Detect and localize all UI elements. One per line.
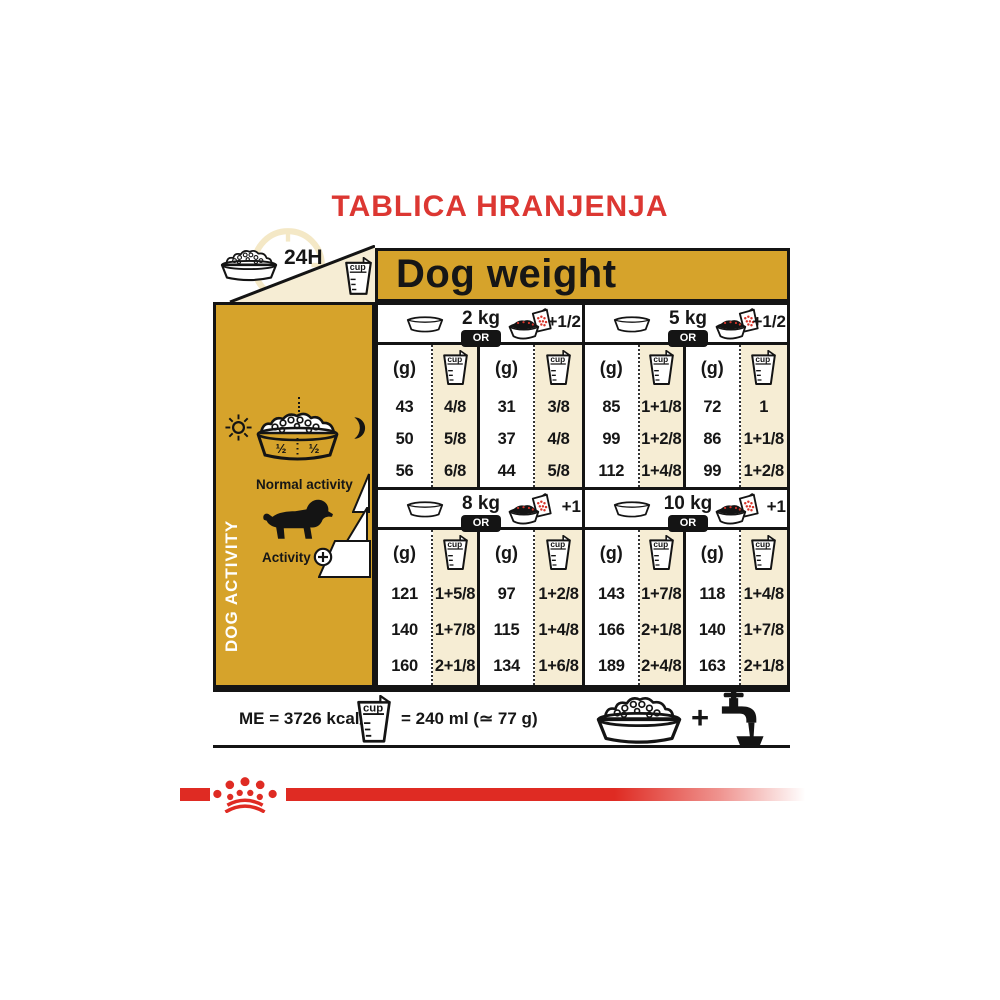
bowl-half-left-label: ½ xyxy=(276,441,287,456)
kibble-bowl-icon xyxy=(590,694,688,745)
weight-block-2kg: 2 kg OR +1/2 (g) 43 50 56 4/8 5/8 6/8 xyxy=(378,305,585,490)
weight-block-5kg: 5 kg OR +1/2 (g) 85 99 112 1+1/8 1+2/8 1… xyxy=(585,305,787,490)
cup-icon xyxy=(442,535,469,571)
kibble-bowl-icon xyxy=(217,248,281,282)
grams-column: (g) 31 37 44 xyxy=(480,345,535,487)
cups-value: 5/8 xyxy=(433,423,477,455)
amount-table: (g) 121 140 160 1+5/8 1+7/8 2+1/8 (g) 97… xyxy=(378,530,582,685)
cup-equivalence-label: = 240 ml (≃ 77 g) xyxy=(401,709,538,729)
cup-unit-header xyxy=(741,530,787,576)
pouch-bowl-icon xyxy=(508,308,553,341)
cups-value: 1+2/8 xyxy=(535,576,582,612)
or-badge: OR xyxy=(461,330,501,347)
grams-column: (g) 118 140 163 xyxy=(686,530,741,685)
feeding-amounts-grid: 2 kg OR +1/2 (g) 43 50 56 4/8 5/8 6/8 xyxy=(375,302,790,688)
feeding-table-leaflet: TABLICA HRANJENJA 24H Dog weight DOG ACT… xyxy=(0,0,1000,1000)
dog-weight-banner: Dog weight xyxy=(375,248,790,302)
grams-unit-header: (g) xyxy=(480,530,533,576)
royal-canin-crown-icon xyxy=(212,764,278,813)
cups-value: 2+1/8 xyxy=(640,612,683,648)
grams-unit-header: (g) xyxy=(480,345,533,391)
cups-value: 1+4/8 xyxy=(640,455,683,487)
grams-unit-header: (g) xyxy=(378,345,431,391)
cup-unit-header xyxy=(640,530,683,576)
activity-label: Activity xyxy=(262,550,311,565)
amount-table: (g) 143 166 189 1+7/8 2+1/8 2+4/8 (g) 11… xyxy=(585,530,787,685)
weight-block-header: 2 kg OR +1/2 xyxy=(378,305,582,345)
grams-unit-header: (g) xyxy=(585,530,638,576)
weight-block-header: 8 kg OR +1 xyxy=(378,490,582,530)
weight-block-10kg: 10 kg OR +1 (g) 143 166 189 1+7/8 2+1/8 … xyxy=(585,490,787,685)
grams-value: 72 xyxy=(686,391,739,423)
cups-value: 4/8 xyxy=(433,391,477,423)
dog-activity-sidebar: DOG ACTIVITY ½ ½ Normal activity Activit… xyxy=(213,302,375,688)
brand-bar xyxy=(286,788,816,801)
measuring-cup-icon xyxy=(355,695,393,744)
cup-icon xyxy=(648,535,675,571)
grams-value: 86 xyxy=(686,423,739,455)
circle-plus-icon xyxy=(313,547,333,567)
grams-unit-header: (g) xyxy=(378,530,431,576)
cups-value: 1+7/8 xyxy=(433,612,477,648)
cups-column: 1+7/8 2+1/8 2+4/8 xyxy=(640,530,686,685)
pouch-amount-label: +1/2 xyxy=(547,312,581,332)
pouch-amount-label: +1 xyxy=(562,497,581,517)
grams-unit-header: (g) xyxy=(686,530,739,576)
cups-value: 2+4/8 xyxy=(640,649,683,685)
weight-block-8kg: 8 kg OR +1 (g) 121 140 160 1+5/8 1+7/8 2… xyxy=(378,490,585,685)
moon-icon xyxy=(348,415,366,441)
pouch-amount-label: +1 xyxy=(767,497,786,517)
grams-value: 31 xyxy=(480,391,533,423)
cup-unit-header xyxy=(640,345,683,391)
weight-block-header: 10 kg OR +1 xyxy=(585,490,787,530)
cups-value: 1+2/8 xyxy=(640,423,683,455)
hours-label: 24H xyxy=(284,246,323,270)
grams-column: (g) 143 166 189 xyxy=(585,530,640,685)
weight-block-header: 5 kg OR +1/2 xyxy=(585,305,787,345)
grams-value: 43 xyxy=(378,391,431,423)
cup-unit-header xyxy=(535,530,582,576)
split-bowl-icon: ½ ½ xyxy=(250,405,345,465)
cups-value: 1+2/8 xyxy=(741,455,787,487)
cup-icon xyxy=(648,350,675,386)
cups-value: 1+4/8 xyxy=(535,612,582,648)
cups-column: 1+1/8 1+2/8 1+4/8 xyxy=(640,345,686,487)
or-badge: OR xyxy=(668,515,708,532)
grams-value: 99 xyxy=(585,423,638,455)
grams-value: 134 xyxy=(480,649,533,685)
pouch-bowl-icon xyxy=(508,493,553,526)
footer-strip: ME = 3726 kcal/kg = 240 ml (≃ 77 g) + xyxy=(213,688,790,748)
pouch-amount-label: +1/2 xyxy=(752,312,786,332)
pouch-bowl-icon xyxy=(715,493,760,526)
cups-value: 2+1/8 xyxy=(433,649,477,685)
grams-value: 160 xyxy=(378,649,431,685)
dog-activity-label: DOG ACTIVITY xyxy=(222,477,242,652)
or-badge: OR xyxy=(668,330,708,347)
grams-value: 166 xyxy=(585,612,638,648)
cups-value: 1+7/8 xyxy=(640,576,683,612)
brand-bar-left xyxy=(180,788,210,801)
cup-icon xyxy=(750,535,777,571)
cups-value: 3/8 xyxy=(535,391,582,423)
plus-sign: + xyxy=(691,700,709,736)
grams-value: 140 xyxy=(378,612,431,648)
amount-table: (g) 43 50 56 4/8 5/8 6/8 (g) 31 37 44 xyxy=(378,345,582,487)
cup-unit-header xyxy=(433,345,477,391)
cups-column: 1+2/8 1+4/8 1+6/8 xyxy=(535,530,582,685)
grams-column: (g) 121 140 160 xyxy=(378,530,433,685)
cups-value: 6/8 xyxy=(433,455,477,487)
sun-icon xyxy=(224,413,253,442)
cups-column: 3/8 4/8 5/8 xyxy=(535,345,582,487)
grams-value: 112 xyxy=(585,455,638,487)
cups-column: 4/8 5/8 6/8 xyxy=(433,345,480,487)
dog-weight-label: Dog weight xyxy=(396,252,617,297)
grams-unit-header: (g) xyxy=(585,345,638,391)
cups-column: 1+4/8 1+7/8 2+1/8 xyxy=(741,530,787,685)
grams-value: 121 xyxy=(378,576,431,612)
grams-value: 115 xyxy=(480,612,533,648)
bowl-half-right-label: ½ xyxy=(309,441,320,456)
grams-value: 97 xyxy=(480,576,533,612)
grams-value: 44 xyxy=(480,455,533,487)
page-title: TABLICA HRANJENJA xyxy=(0,190,1000,224)
cup-icon xyxy=(442,350,469,386)
cup-unit-header xyxy=(741,345,787,391)
cup-unit-header xyxy=(433,530,477,576)
cups-value: 1+4/8 xyxy=(741,576,787,612)
cups-value: 1 xyxy=(741,391,787,423)
cup-icon xyxy=(750,350,777,386)
cup-icon xyxy=(545,350,572,386)
cups-value: 1+6/8 xyxy=(535,649,582,685)
grams-value: 37 xyxy=(480,423,533,455)
cups-value: 1+7/8 xyxy=(741,612,787,648)
grams-value: 163 xyxy=(686,649,739,685)
cup-unit-header xyxy=(535,345,582,391)
grams-column: (g) 43 50 56 xyxy=(378,345,433,487)
grams-value: 99 xyxy=(686,455,739,487)
cups-value: 2+1/8 xyxy=(741,649,787,685)
grams-value: 140 xyxy=(686,612,739,648)
amount-table: (g) 85 99 112 1+1/8 1+2/8 1+4/8 (g) 72 8… xyxy=(585,345,787,487)
water-tap-icon xyxy=(716,690,764,748)
or-badge: OR xyxy=(461,515,501,532)
grams-unit-header: (g) xyxy=(686,345,739,391)
grams-column: (g) 97 115 134 xyxy=(480,530,535,685)
cup-icon xyxy=(545,535,572,571)
cups-column: 1 1+1/8 1+2/8 xyxy=(741,345,787,487)
normal-activity-label: Normal activity xyxy=(256,477,353,492)
cups-value: 1+1/8 xyxy=(741,423,787,455)
cup-icon xyxy=(344,257,373,296)
grams-value: 189 xyxy=(585,649,638,685)
grams-column: (g) 85 99 112 xyxy=(585,345,640,487)
grams-value: 50 xyxy=(378,423,431,455)
cups-value: 1+5/8 xyxy=(433,576,477,612)
cups-value: 5/8 xyxy=(535,455,582,487)
grams-value: 56 xyxy=(378,455,431,487)
cups-value: 4/8 xyxy=(535,423,582,455)
grams-value: 85 xyxy=(585,391,638,423)
cups-column: 1+5/8 1+7/8 2+1/8 xyxy=(433,530,480,685)
grams-column: (g) 72 86 99 xyxy=(686,345,741,487)
cups-value: 1+1/8 xyxy=(640,391,683,423)
grams-value: 143 xyxy=(585,576,638,612)
grams-value: 118 xyxy=(686,576,739,612)
